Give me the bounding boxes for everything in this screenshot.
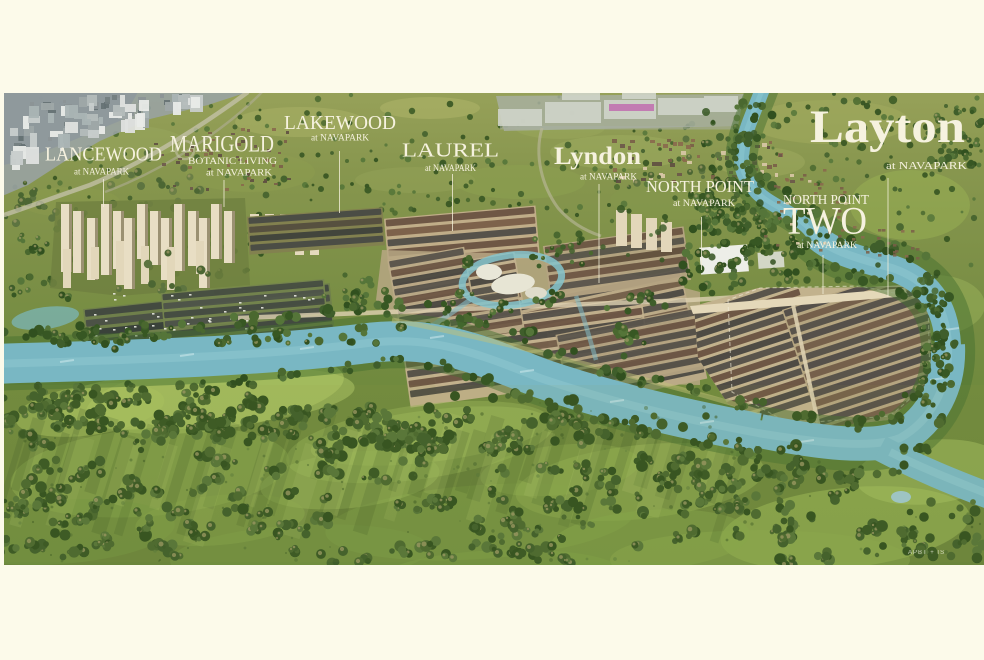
svg-text:MARIGOLD: MARIGOLD bbox=[170, 132, 274, 157]
svg-text:at NAVAPARK: at NAVAPARK bbox=[206, 168, 273, 178]
svg-text:at NAVAPARK: at NAVAPARK bbox=[886, 161, 968, 172]
svg-text:NORTH POINT: NORTH POINT bbox=[646, 177, 754, 196]
svg-text:LANCEWOOD: LANCEWOOD bbox=[45, 144, 162, 166]
svg-text:TWO: TWO bbox=[783, 200, 867, 243]
svg-text:LAUREL: LAUREL bbox=[402, 140, 499, 162]
svg-text:APBT + IS: APBT + IS bbox=[908, 550, 945, 556]
svg-text:Layton: Layton bbox=[810, 101, 965, 153]
svg-text:BOTANIC LIVING: BOTANIC LIVING bbox=[188, 156, 278, 166]
svg-text:Lyndon: Lyndon bbox=[554, 143, 641, 170]
svg-text:at NAVAPARK: at NAVAPARK bbox=[580, 172, 638, 182]
svg-text:at NAVAPARK: at NAVAPARK bbox=[673, 198, 736, 208]
svg-text:at NAVAPARK: at NAVAPARK bbox=[425, 163, 476, 173]
svg-text:LAKEWOOD: LAKEWOOD bbox=[284, 112, 396, 134]
svg-text:at NAVAPARK: at NAVAPARK bbox=[74, 167, 129, 177]
svg-text:at NAVAPARK: at NAVAPARK bbox=[797, 240, 858, 250]
svg-text:at NAVAPARK: at NAVAPARK bbox=[311, 133, 370, 143]
